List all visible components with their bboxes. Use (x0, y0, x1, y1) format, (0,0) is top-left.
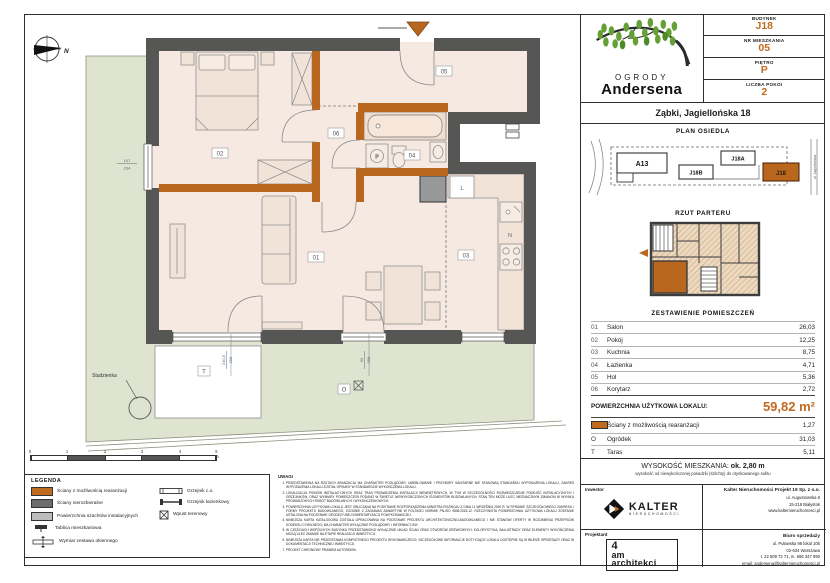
bathroom-radiator-icon (159, 498, 183, 506)
note-item: PROJEKT CHRONIONY PRAWEM AUTORSKIM. (286, 548, 574, 552)
designer-label: Projektant (585, 532, 607, 537)
legend-item: Grzejnik łazienkowy (159, 498, 263, 506)
legend-box: LEGENDA Ściany z możliwością rearanżacji… (24, 474, 270, 558)
notes-list: PRZEDSTAWIONA NA RZUTACH ARANŻACJA MA CH… (286, 481, 574, 552)
notes-block: UWAGI PRZEDSTAWIONA NA RZUTACH ARANŻACJA… (278, 474, 574, 562)
company-cell: Kalter Nieruchomości Projekt 19 Sp. z o.… (703, 485, 826, 529)
info-budynek: BUDYNEK J18 (704, 14, 826, 36)
ground-floor-overview-section: RZUT PARTERU (581, 210, 825, 310)
note-item: LOKALIZACJA PIONÓW INSTALACYJNYCH ORAZ T… (286, 491, 574, 503)
scale-bar-segments (30, 455, 217, 461)
sales-office-label: Biuro sprzedaży (709, 534, 820, 539)
apartment-height-note: WYSOKOŚĆ MIESZKANIA: ok. 2,80 m wysokość… (581, 458, 825, 484)
table-row: 03Kuchnia8,75 (591, 346, 815, 358)
orange-wall-swatch (591, 421, 608, 429)
table-row: 05Hol5,36 (591, 371, 815, 383)
building-a13-label: A13 (636, 161, 649, 168)
building-j18a-label: J18A (731, 157, 744, 163)
shaft-area-swatch (31, 512, 53, 521)
project-address: Ząbki, Jagiellońska 18 (581, 102, 825, 124)
sales-office-cell: Biuro sprzedaży ul. Puławska 98 lokal 10… (703, 529, 826, 567)
total-area-value: 59,82 m² (763, 399, 815, 414)
legend-item: Tablica mieszkaniowa (31, 524, 159, 532)
unit-info-box: BUDYNEK J18 NR MIESZKANIA 05 PIĘTRO P LI… (703, 14, 826, 102)
building-j18-label: J18 (776, 171, 787, 177)
note-item: PRZEDSTAWIONA NA RZUTACH ARANŻACJA MA CH… (286, 481, 574, 489)
height-sub-note: wysokość od niewykończonej posadzki (szl… (581, 471, 825, 476)
apartment-number-value: 05 (704, 43, 826, 54)
table-row: 02Pokój12,25 (591, 333, 815, 345)
radiator-icon (159, 487, 183, 495)
legend-item: Ściany z możliwością rearanżacji (31, 487, 159, 496)
rooms-summary-section: ZESTAWIENIE POMIESZCZEŃ 01Salon26,03 02P… (581, 310, 825, 458)
table-row: 04Łazienka4,71 (591, 358, 815, 370)
brand-name-bottom: Andersena (581, 81, 703, 98)
meter-board-icon (31, 524, 51, 532)
unit-entrance-arrow-icon (639, 249, 648, 257)
note-item: NINIEJSZA KARTA KATALOGOWA ZOSTAŁA OPRAC… (286, 518, 574, 526)
brand-logo: OGRODY Andersena (581, 14, 703, 102)
building-j18b-label: J18B (689, 171, 702, 177)
ground-floor-thumbnail (581, 217, 826, 307)
investor-label: Inwestor (585, 487, 604, 492)
extra-row-terrace: TTaras5,11 (591, 445, 815, 458)
table-row: 01Salon26,03 (591, 321, 815, 333)
company-name: Kalter Nieruchomości Projekt 19 Sp. z o.… (709, 488, 820, 493)
structural-wall-swatch (31, 499, 53, 508)
note-item: NINIEJSZA KARTA NIE PRZEDSTAWIA KOMPLETN… (286, 538, 574, 546)
tree-branch-icon (590, 16, 694, 66)
note-item: W CZĘŚCIACH WSPÓLNYCH BUDYNKU PRZEDSTAWI… (286, 528, 574, 536)
site-plan-map: A13 J18B J18A J18 ul. Jagiellońska (581, 135, 826, 201)
sales-office-email: email: andersena@kalternieruchomosci.pl (709, 561, 820, 568)
window-dimension-icon (31, 536, 55, 548)
ground-floor-title: RZUT PARTERU (581, 210, 825, 217)
info-pietro: PIĘTRO P (704, 58, 826, 80)
ground-drain-icon (159, 510, 169, 520)
info-liczba-pokoi: LICZBA POKOI 2 (704, 80, 826, 102)
info-nr-mieszkania: NR MIESZKANIA 05 (704, 36, 826, 58)
rooms-table-title: ZESTAWIENIE POMIESZCZEŃ (581, 310, 825, 317)
building-value: J18 (704, 21, 826, 32)
notes-title: UWAGI (278, 474, 574, 479)
note-item: POWIERZCHNIA UŻYTKOWA LOKALU JEST OBLICZ… (286, 505, 574, 517)
designer-cell: Projektant 4 am architekci (581, 529, 703, 567)
street-label: ul. Jagiellońska (813, 155, 817, 180)
floor-value: P (704, 65, 826, 76)
kalter-name: KALTER (629, 502, 680, 512)
designer-logo: 4 am architekci (606, 539, 678, 571)
rooms-table: 01Salon26,03 02Pokój12,25 03Kuchnia8,75 … (591, 321, 815, 459)
apartment-card-sheet: Studzienka (0, 0, 830, 583)
legend-item: Grzejnik c.o. (159, 487, 263, 495)
kalter-sub: NIERUCHOMOŚCI (629, 512, 680, 516)
extra-row-garden: OOgródek31,03 (591, 433, 815, 445)
site-plan-title: PLAN OSIEDLA (581, 128, 825, 135)
legend-item: Wymiar zestawu okiennego (31, 536, 159, 548)
header-row: OGRODY Andersena BUDYNEK J18 NR MIESZKAN… (581, 14, 825, 102)
rooms-count-value: 2 (704, 87, 826, 98)
scale-bar-labels: 0 1 2 3 4 5 m (30, 449, 217, 455)
kalter-logo-icon (603, 498, 625, 520)
panel-footer: Inwestor KALTER NIERUCHOMOŚCI Kalter Nie… (581, 484, 825, 566)
site-plan-section: PLAN OSIEDLA A13 J18B J18A J18 ul. Jagie… (581, 124, 825, 210)
scale-bar: 0 1 2 3 4 5 m (30, 449, 217, 465)
legend-title: LEGENDA (31, 478, 263, 484)
extra-row-walls: Ściany z możliwością rearanżacji1,27 (591, 417, 815, 432)
investor-cell: Inwestor KALTER NIERUCHOMOŚCI (581, 485, 703, 529)
legend-item: Powierzchnia szachtów instalacyjnych (31, 512, 159, 521)
title-block-panel: OGRODY Andersena BUDYNEK J18 NR MIESZKAN… (580, 14, 825, 566)
table-row: 06Korytarz2,72 (591, 383, 815, 395)
legend-item: Ściany nierozbieralne (31, 499, 159, 508)
usable-area-total: POWIERZCHNIA UŻYTKOWA LOKALU: 59,82 m² (591, 395, 815, 417)
orange-wall-swatch (31, 487, 53, 496)
legend-item: Wpust terenowy (159, 510, 263, 520)
company-website: www.kalternieruchomosci.pl (709, 508, 820, 515)
height-value: ok. 2,80 m (731, 463, 765, 470)
